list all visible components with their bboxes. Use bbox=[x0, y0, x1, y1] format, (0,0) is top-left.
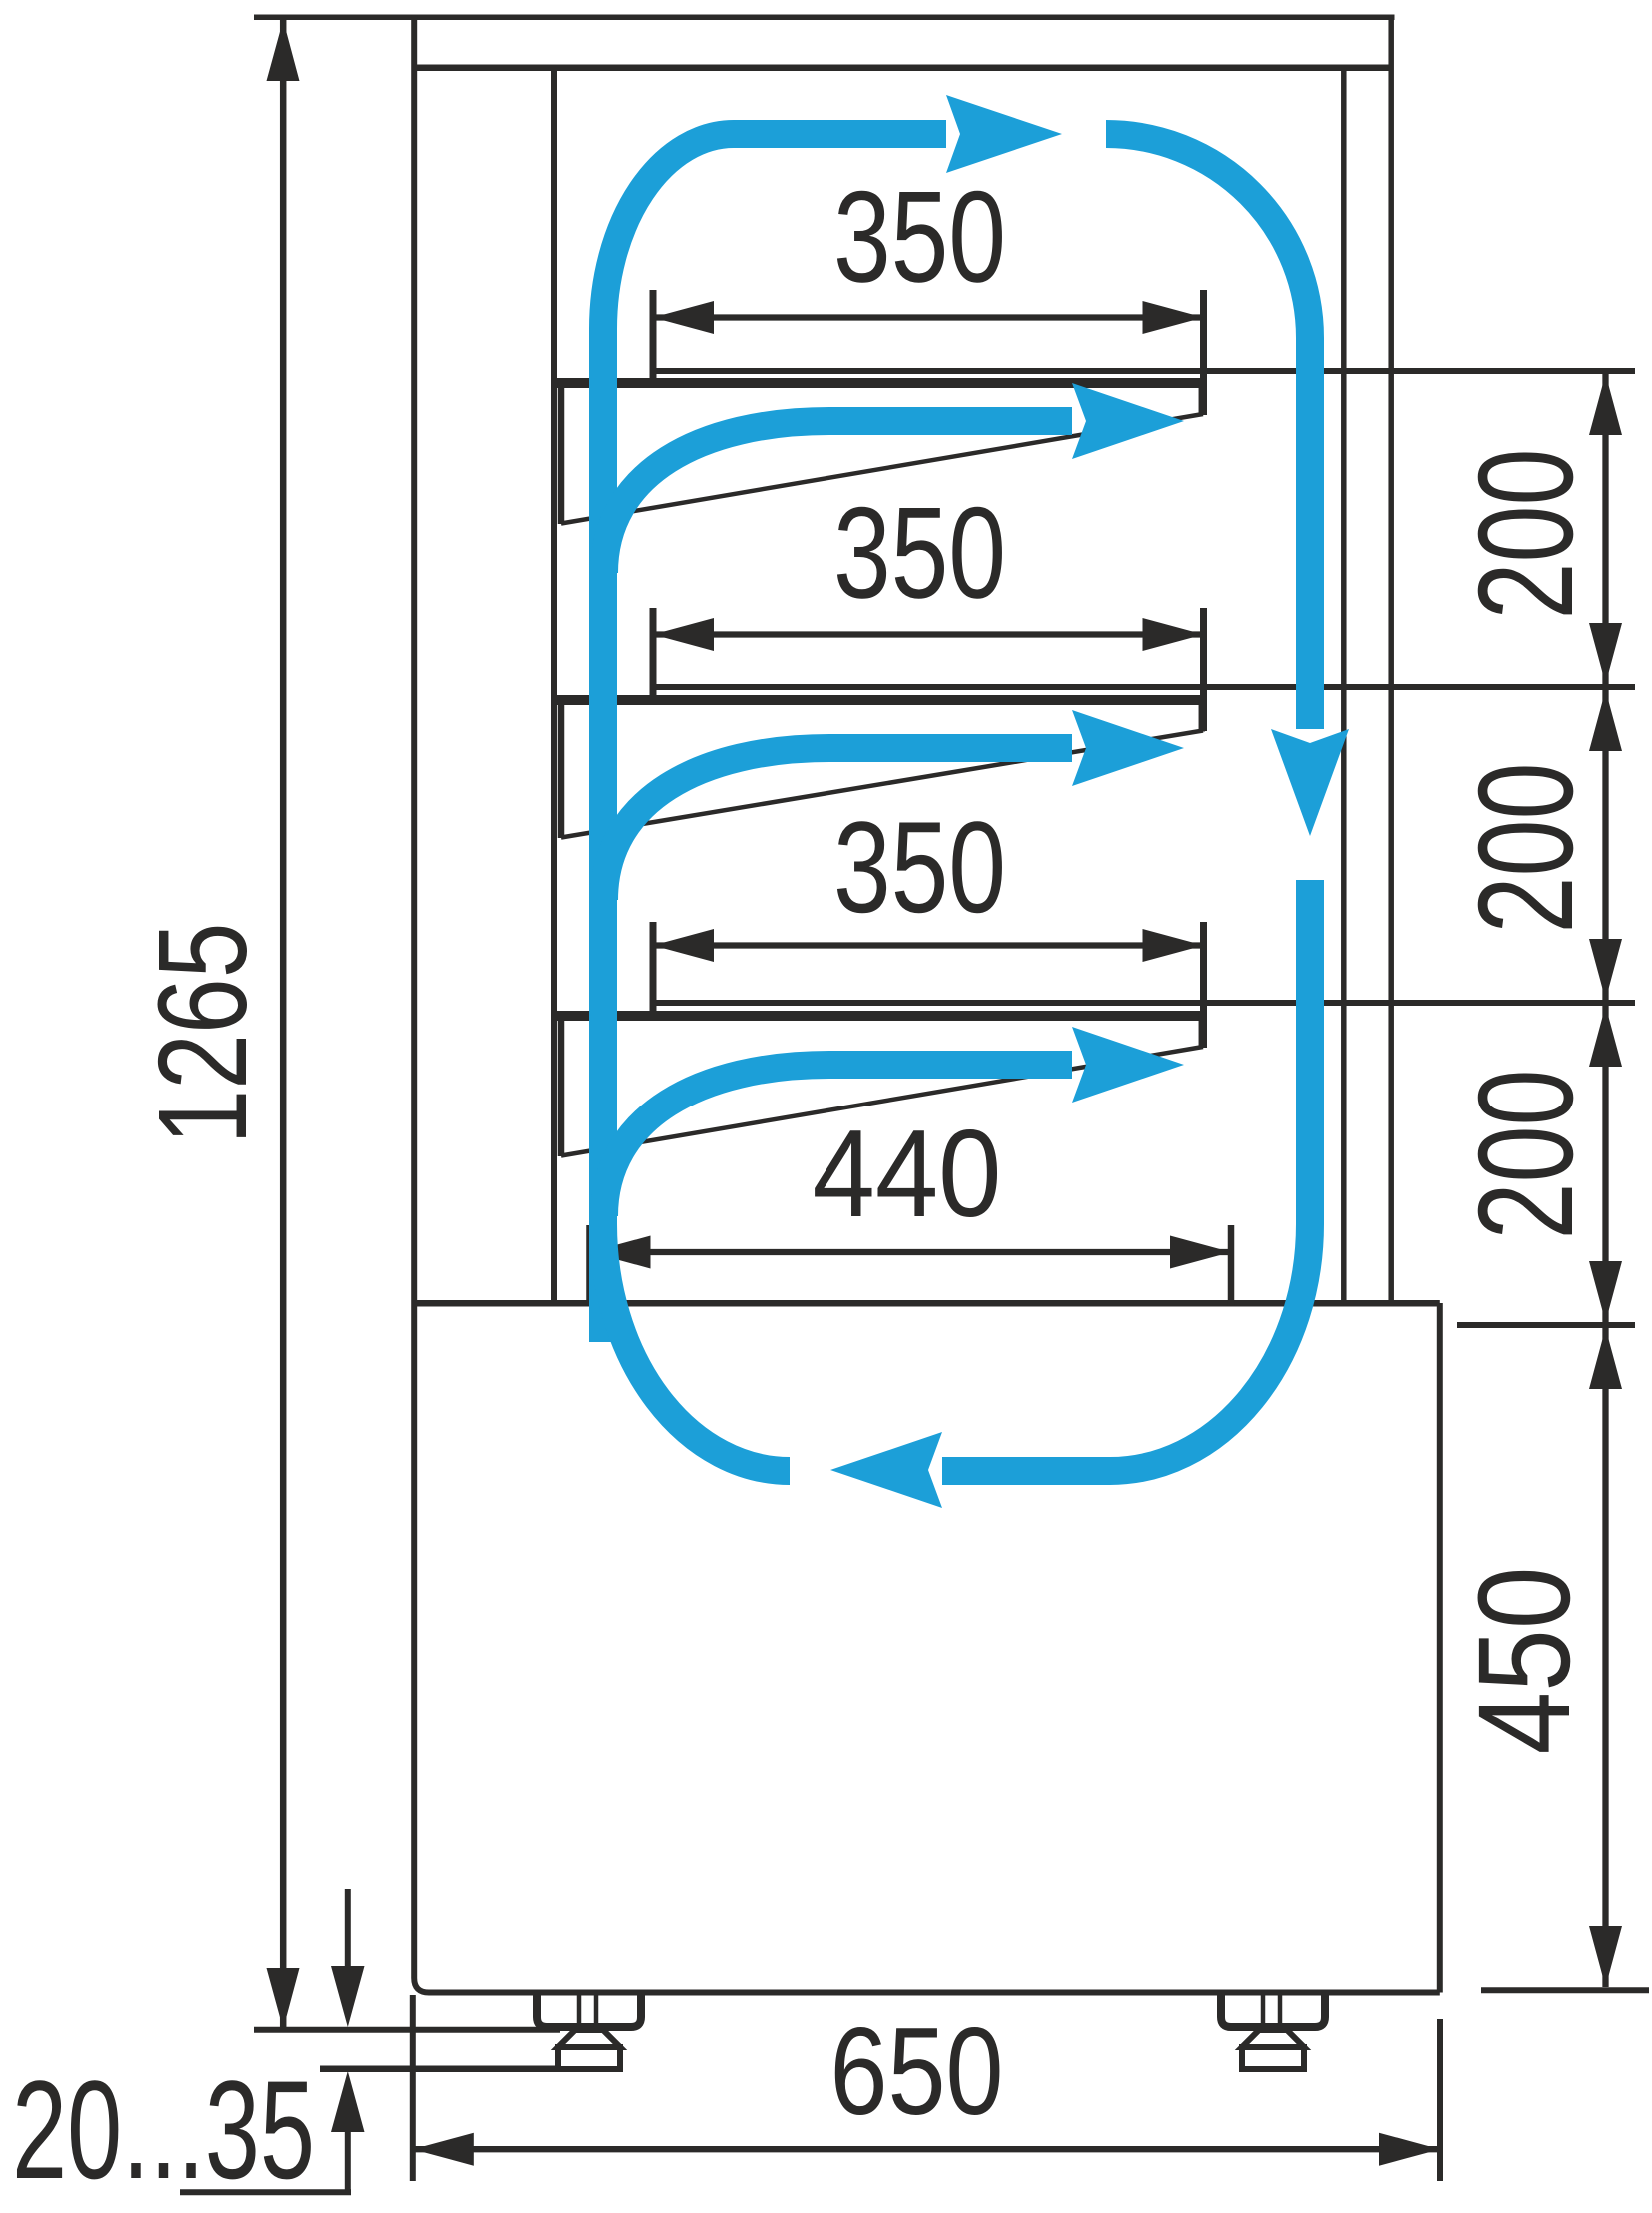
svg-text:1265: 1265 bbox=[132, 923, 273, 1145]
svg-text:650: 650 bbox=[830, 2003, 1004, 2141]
svg-text:200: 200 bbox=[1450, 1070, 1601, 1240]
svg-text:20...35: 20...35 bbox=[12, 2051, 315, 2208]
svg-text:350: 350 bbox=[833, 794, 1006, 940]
svg-text:440: 440 bbox=[813, 1106, 1002, 1243]
svg-text:350: 350 bbox=[833, 480, 1006, 626]
svg-text:350: 350 bbox=[833, 164, 1006, 310]
svg-text:450: 450 bbox=[1450, 1567, 1597, 1755]
svg-text:200: 200 bbox=[1450, 763, 1601, 934]
svg-text:200: 200 bbox=[1450, 449, 1601, 620]
